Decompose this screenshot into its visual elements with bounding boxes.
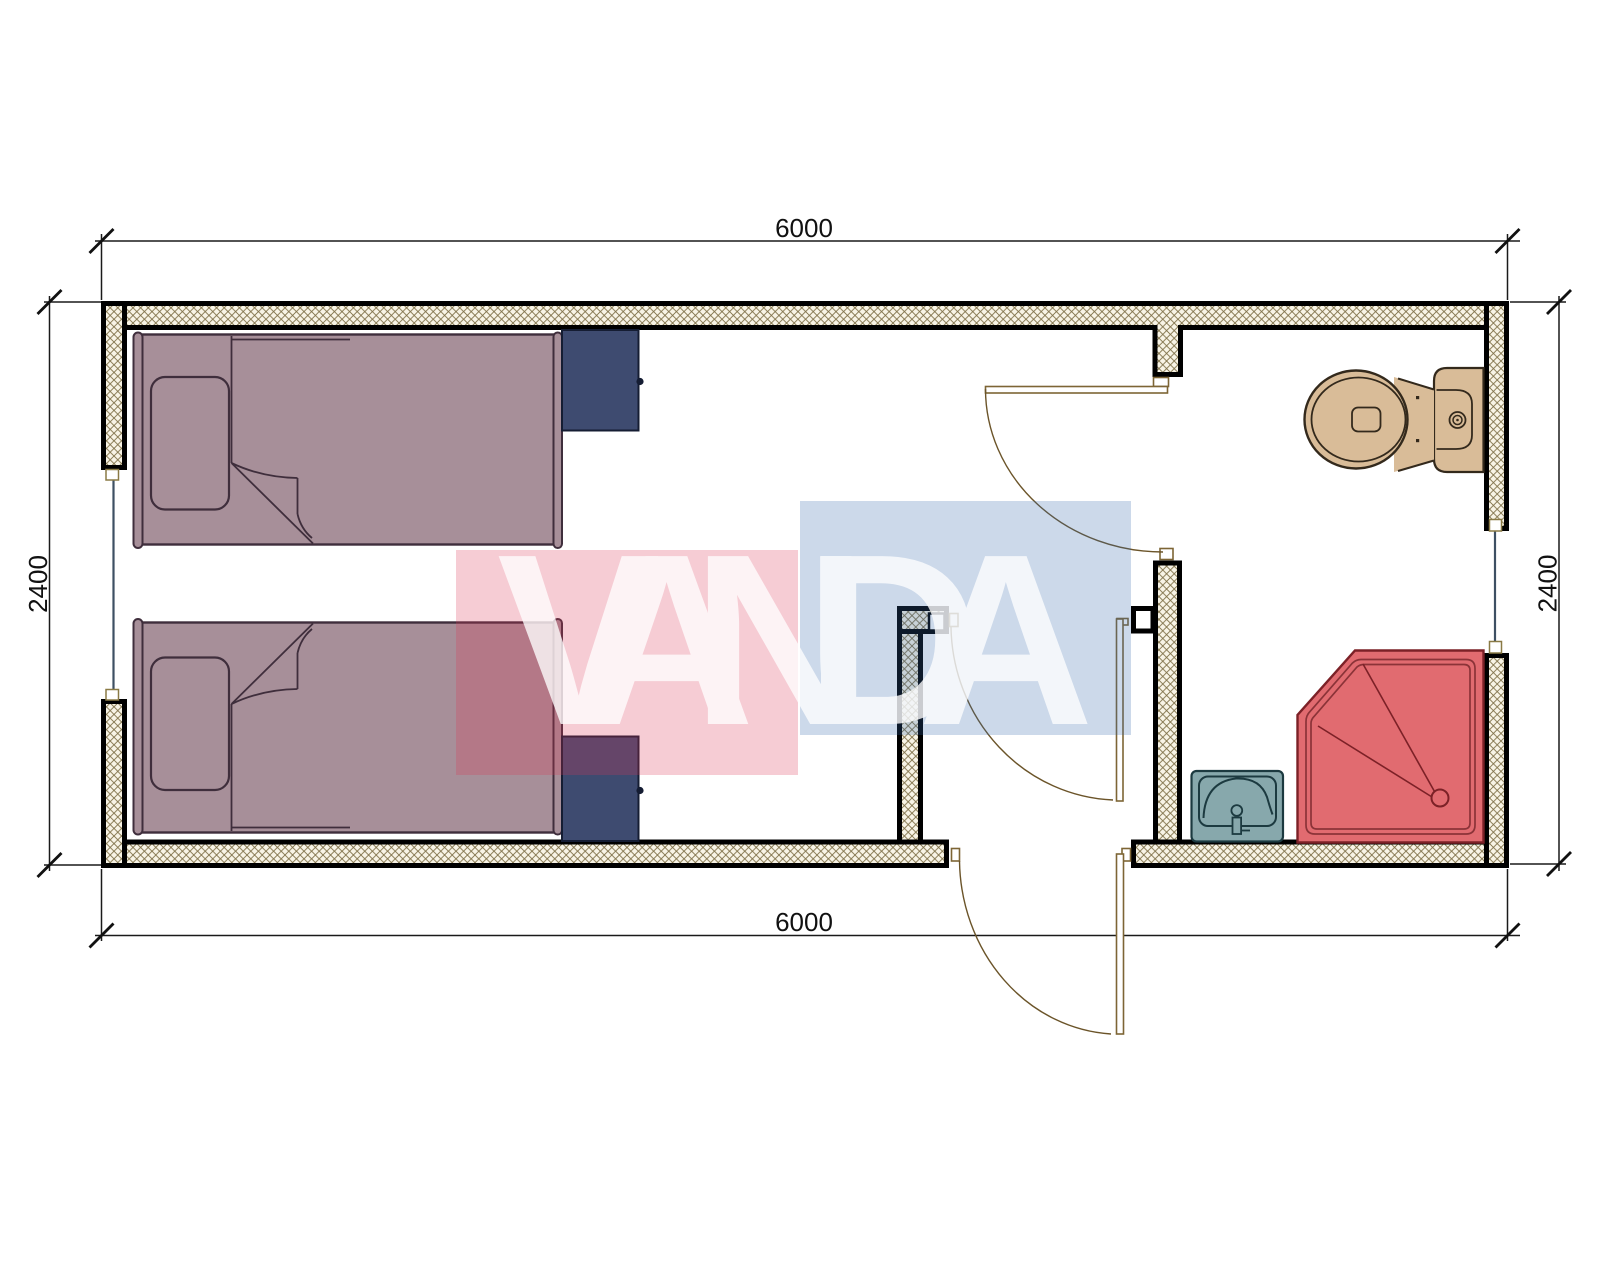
svg-text:6000: 6000 bbox=[775, 213, 833, 243]
svg-text:6000: 6000 bbox=[775, 907, 833, 937]
svg-text:2400: 2400 bbox=[23, 555, 53, 613]
svg-text:VANDA: VANDA bbox=[497, 503, 1094, 776]
svg-text:2400: 2400 bbox=[1533, 555, 1563, 613]
